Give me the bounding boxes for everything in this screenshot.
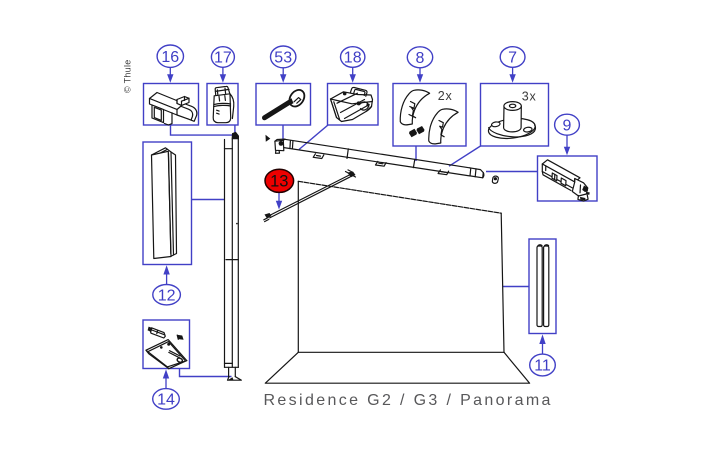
svg-text:9: 9	[563, 117, 572, 134]
svg-text:Residence G2 / G3 / Panorama: Residence G2 / G3 / Panorama	[264, 392, 553, 409]
svg-text:7: 7	[508, 50, 517, 67]
svg-text:18: 18	[344, 50, 362, 67]
svg-text:53: 53	[274, 50, 292, 67]
svg-text:16: 16	[161, 49, 179, 66]
svg-text:© Thule: © Thule	[123, 59, 133, 93]
svg-text:12: 12	[158, 287, 176, 304]
svg-text:11: 11	[534, 358, 551, 375]
svg-text:8: 8	[416, 50, 425, 67]
svg-text:13: 13	[270, 173, 288, 191]
svg-text:2x: 2x	[438, 89, 453, 103]
svg-text:3x: 3x	[522, 89, 537, 103]
svg-text:14: 14	[157, 392, 175, 409]
svg-text:17: 17	[214, 50, 232, 67]
